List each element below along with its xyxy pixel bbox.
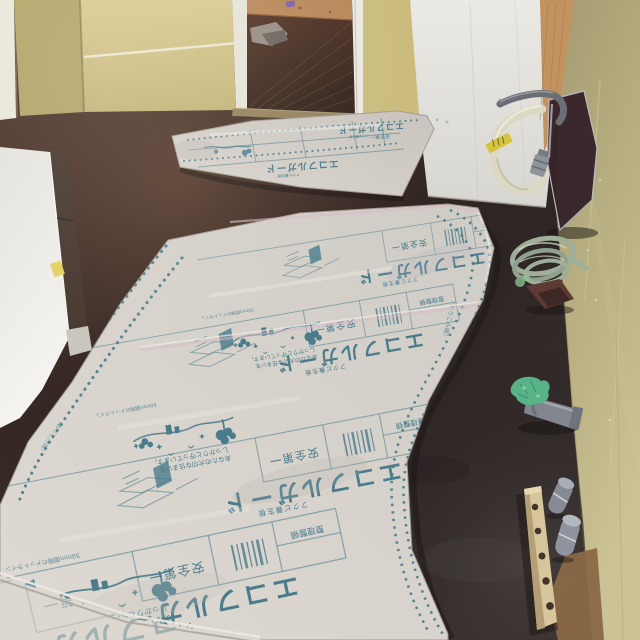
renovation-room-photo: 安全第一 整理整頓 エコフルガード フクビ養生板 [0,0,640,640]
light-wash [0,0,640,640]
photo-canvas: 安全第一 整理整頓 エコフルガード フクビ養生板 [0,0,640,640]
